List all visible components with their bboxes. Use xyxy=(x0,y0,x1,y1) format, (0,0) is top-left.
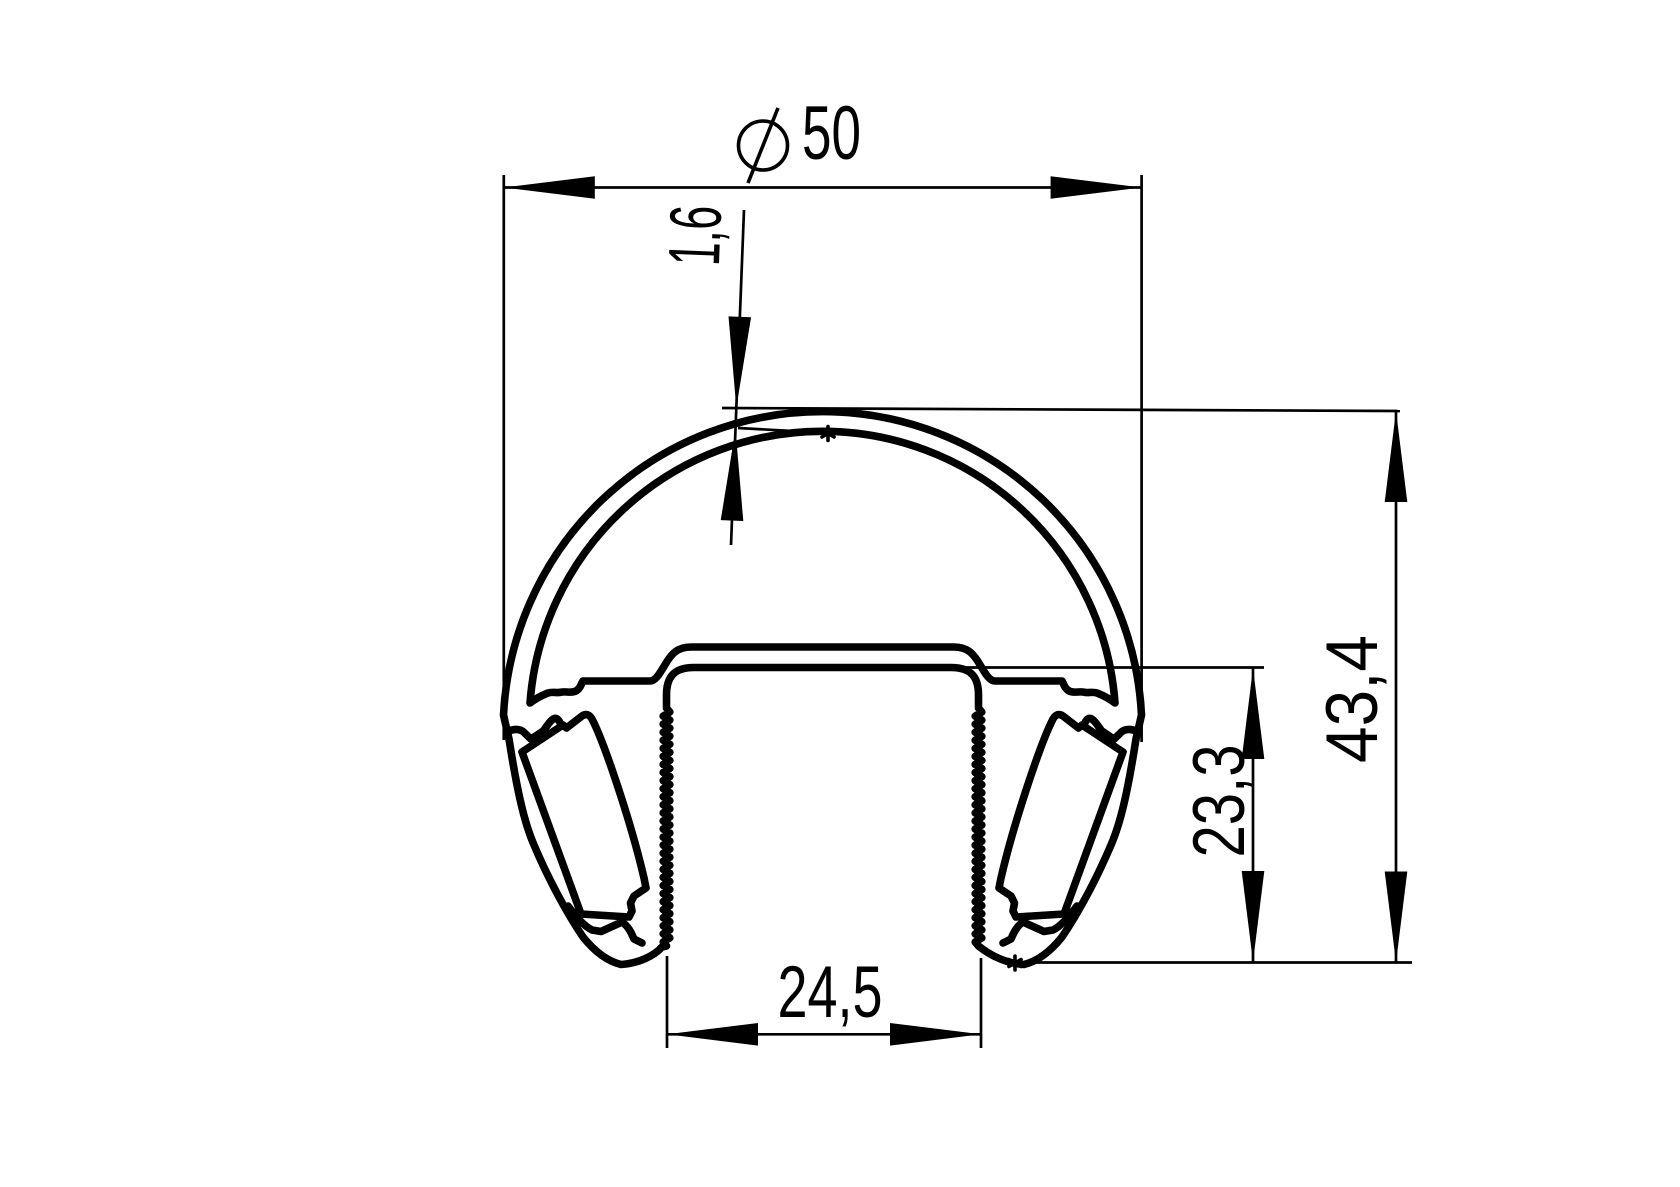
svg-text:43,4: 43,4 xyxy=(1312,635,1393,763)
svg-text:1,6: 1,6 xyxy=(654,204,737,267)
svg-text:24,5: 24,5 xyxy=(778,952,883,1033)
svg-text:23,3: 23,3 xyxy=(1179,745,1260,858)
svg-text:50: 50 xyxy=(802,91,861,176)
